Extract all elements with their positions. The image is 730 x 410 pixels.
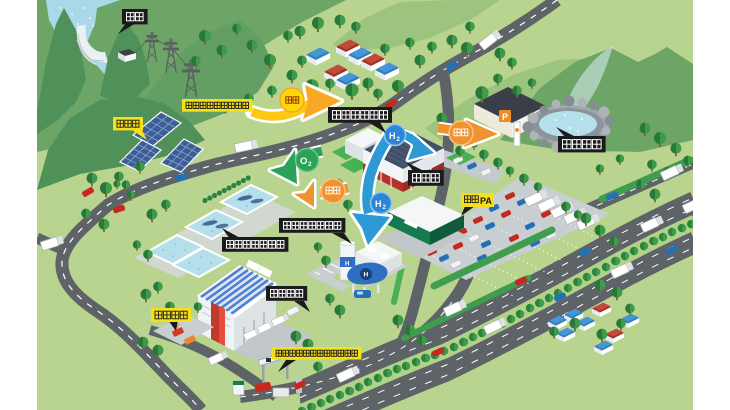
svg-text:PA: PA bbox=[480, 196, 492, 206]
svg-text:O: O bbox=[300, 156, 307, 167]
svg-text:H: H bbox=[389, 131, 396, 141]
svg-text:P: P bbox=[502, 112, 508, 122]
svg-text:H: H bbox=[375, 199, 382, 209]
svg-text:H: H bbox=[345, 262, 349, 268]
svg-text:2: 2 bbox=[308, 161, 312, 168]
svg-text:H: H bbox=[364, 272, 369, 279]
